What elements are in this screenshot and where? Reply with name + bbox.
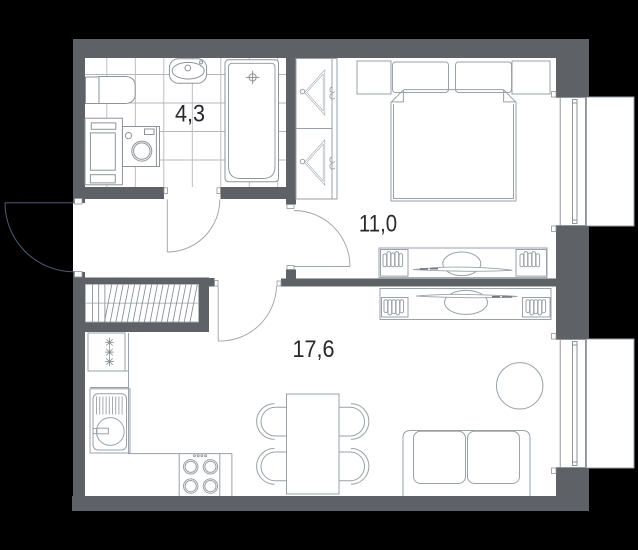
svg-text:4,3: 4,3: [175, 99, 205, 126]
svg-text:17,6: 17,6: [292, 335, 334, 362]
svg-text:11,0: 11,0: [359, 210, 397, 237]
